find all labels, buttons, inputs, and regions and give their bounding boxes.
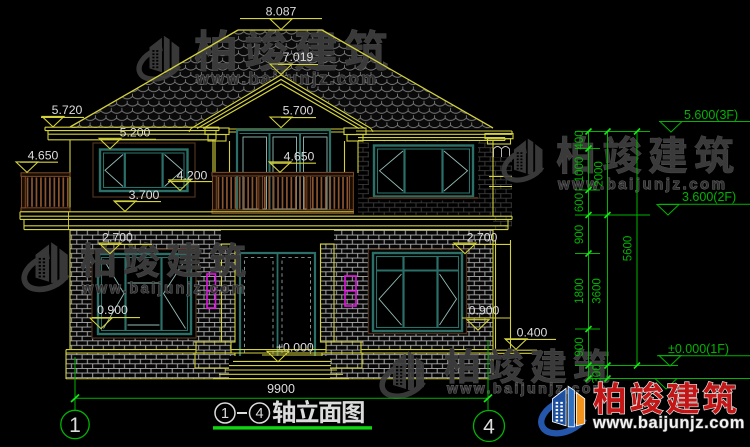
svg-text:900: 900	[574, 337, 586, 356]
svg-text:5.720: 5.720	[52, 103, 83, 117]
svg-text:0.900: 0.900	[469, 304, 500, 318]
svg-text:www.baijunjz.com: www.baijunjz.com	[592, 414, 745, 432]
svg-text:900: 900	[574, 225, 586, 244]
svg-text:8.087: 8.087	[266, 5, 297, 19]
svg-text:0.400: 0.400	[517, 326, 548, 340]
svg-text:2.700: 2.700	[467, 231, 498, 245]
svg-text:1: 1	[69, 414, 81, 437]
svg-text:5.600(3F): 5.600(3F)	[684, 108, 738, 122]
svg-text:2.700: 2.700	[102, 231, 133, 245]
svg-text:9900: 9900	[267, 382, 295, 396]
svg-text:5600: 5600	[623, 236, 635, 262]
svg-text:3.600(2F): 3.600(2F)	[682, 190, 736, 204]
svg-text:1000: 1000	[574, 157, 586, 183]
svg-text:600: 600	[574, 193, 586, 212]
svg-text:1800: 1800	[574, 278, 586, 304]
svg-text:3.700: 3.700	[129, 188, 160, 202]
svg-text:3600: 3600	[592, 278, 604, 304]
svg-text:7.019: 7.019	[283, 50, 314, 64]
svg-text:www.baijunjz.com: www.baijunjz.com	[446, 380, 608, 396]
svg-text:5.700: 5.700	[283, 104, 314, 118]
svg-text:1: 1	[221, 406, 229, 422]
svg-text:www.baijunjz.com: www.baijunjz.com	[81, 281, 247, 297]
svg-text:±0.000(1F): ±0.000(1F)	[668, 342, 729, 356]
svg-text:0.900: 0.900	[97, 303, 128, 317]
svg-text:4: 4	[255, 406, 263, 422]
svg-text:2000: 2000	[594, 161, 606, 187]
svg-text:4: 4	[483, 416, 495, 439]
svg-text:400: 400	[574, 130, 586, 149]
svg-text:5.200: 5.200	[120, 126, 151, 140]
svg-text:4.650: 4.650	[28, 149, 59, 163]
svg-text:±0.000: ±0.000	[276, 341, 314, 355]
svg-text:300: 300	[592, 364, 604, 383]
